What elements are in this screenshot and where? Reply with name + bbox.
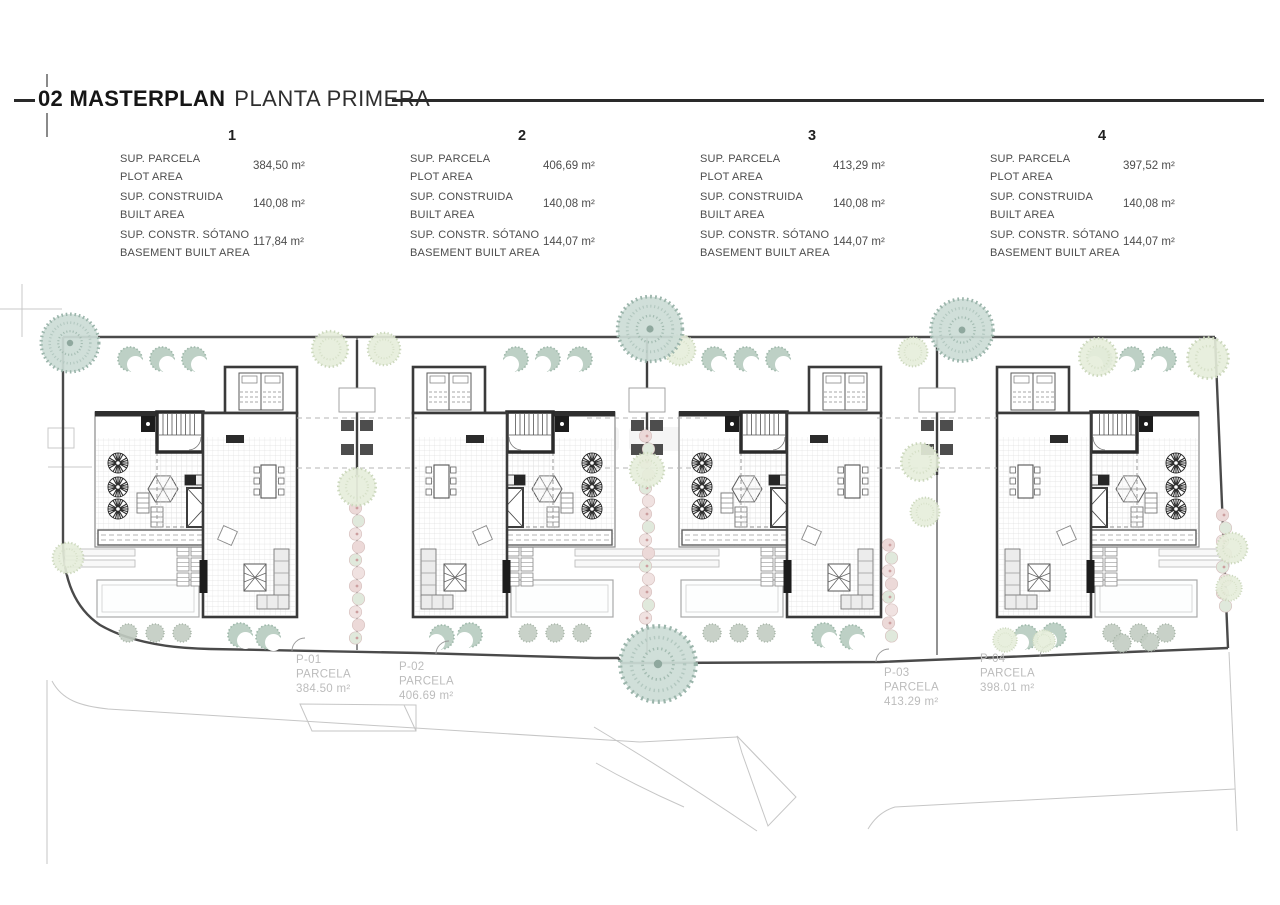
parcel-label-4: P-04PARCELA398.01 m² (980, 653, 1035, 694)
parcel-label-1: P-01PARCELA384.50 m² (296, 654, 351, 695)
masterplan-sheet: 02 MASTERPLANPLANTA PRIMERA 1 SUP. PARCE… (0, 0, 1280, 905)
villa-plan-3 (649, 347, 881, 651)
villa-plan-2 (413, 347, 645, 651)
parcel-label-2: P-02PARCELA406.69 m² (399, 661, 454, 702)
villa-plan-4 (997, 347, 1229, 651)
villa-plan-1 (65, 347, 297, 651)
site-plan: P-01PARCELA384.50 m² P-02PARCELA406.69 m… (0, 0, 1280, 905)
parcel-label-3: P-03PARCELA413.29 m² (884, 667, 939, 708)
context-lines (0, 284, 92, 467)
